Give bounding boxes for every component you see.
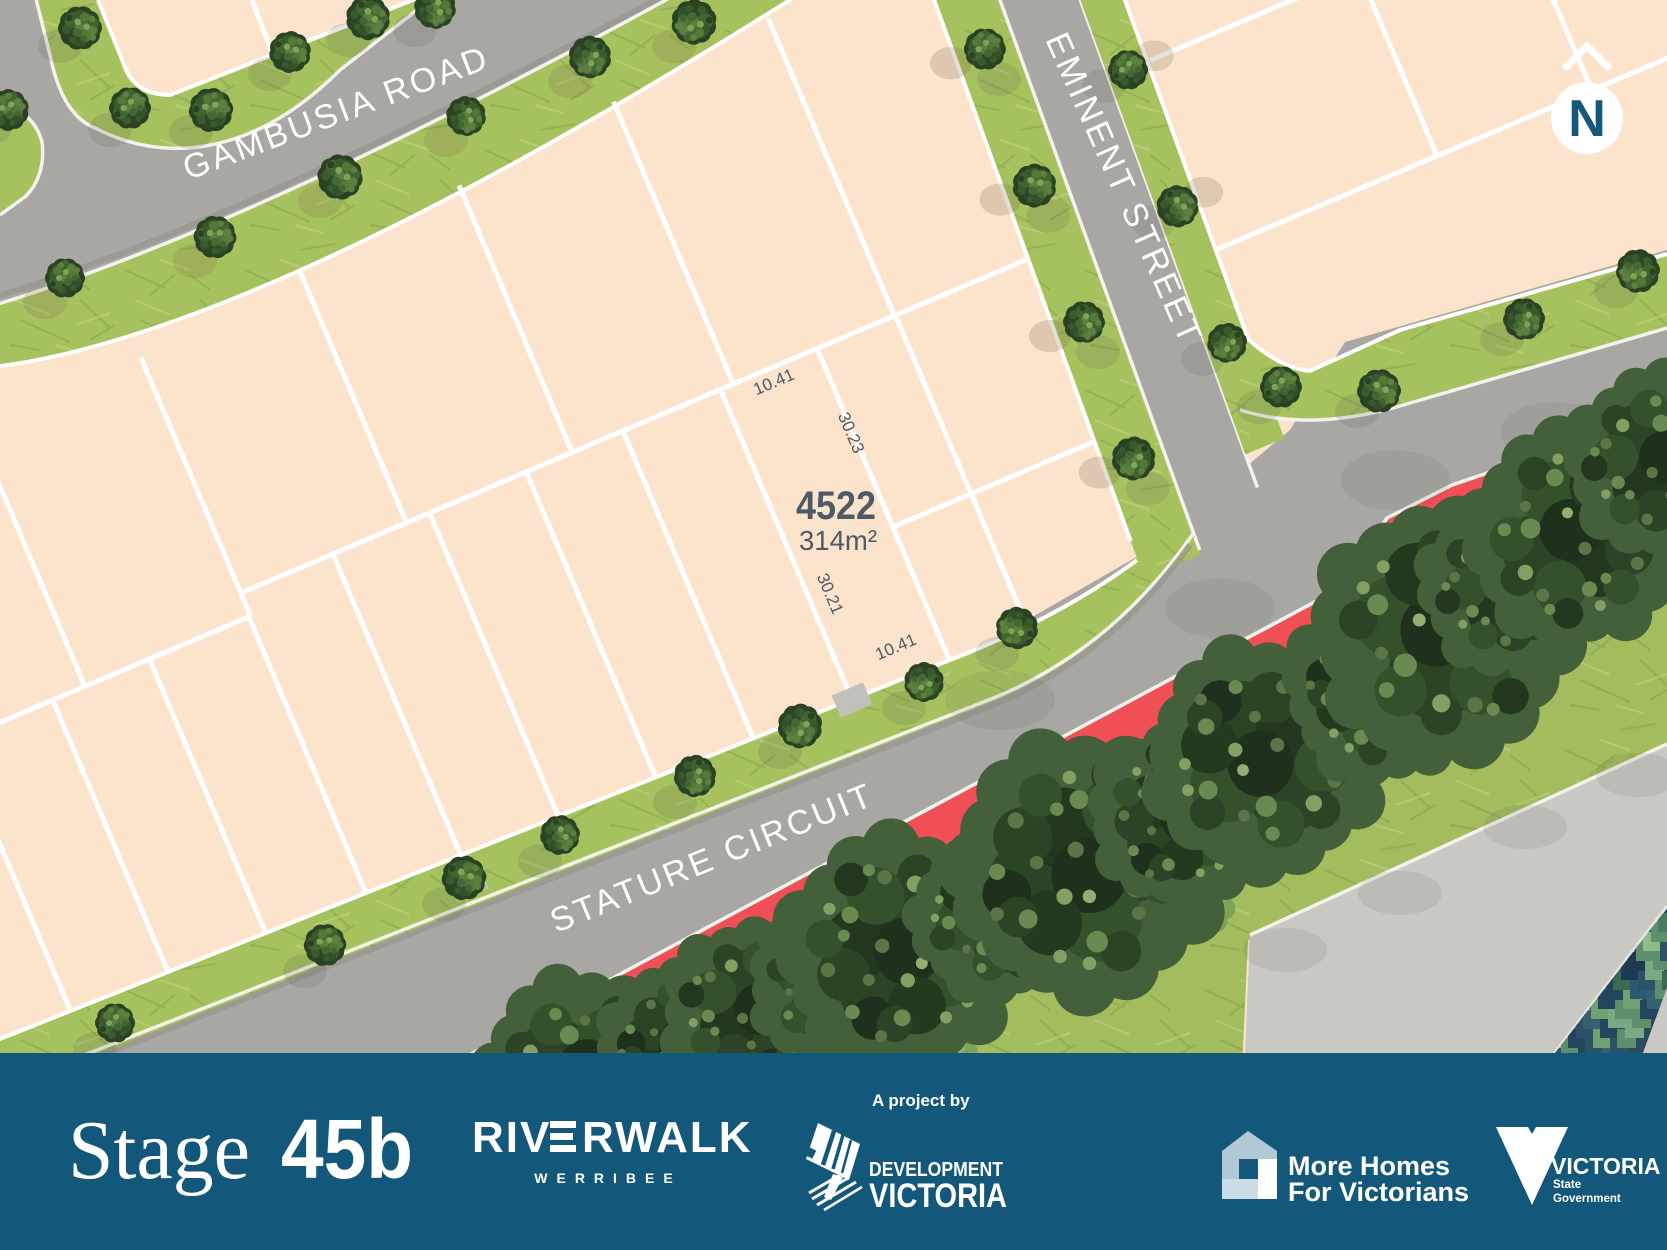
svg-text:WERRIBEE: WERRIBEE bbox=[534, 1170, 681, 1186]
svg-text:Government: Government bbox=[1553, 1193, 1621, 1205]
svg-text:Stage: Stage bbox=[68, 1104, 250, 1197]
svg-text:4522: 4522 bbox=[796, 484, 876, 528]
svg-text:For Victorians: For Victorians bbox=[1288, 1177, 1469, 1207]
svg-text:VICTORIA: VICTORIA bbox=[869, 1177, 1007, 1215]
svg-text:A project by: A project by bbox=[872, 1091, 970, 1110]
svg-text:State: State bbox=[1553, 1179, 1581, 1191]
svg-text:N: N bbox=[1568, 90, 1606, 148]
svg-text:314m²: 314m² bbox=[799, 525, 877, 556]
svg-text:45b: 45b bbox=[281, 1102, 413, 1196]
svg-text:VICTORIA: VICTORIA bbox=[1551, 1153, 1660, 1179]
svg-text:RWALK: RWALK bbox=[582, 1113, 753, 1162]
svg-text:RIV: RIV bbox=[472, 1113, 551, 1162]
